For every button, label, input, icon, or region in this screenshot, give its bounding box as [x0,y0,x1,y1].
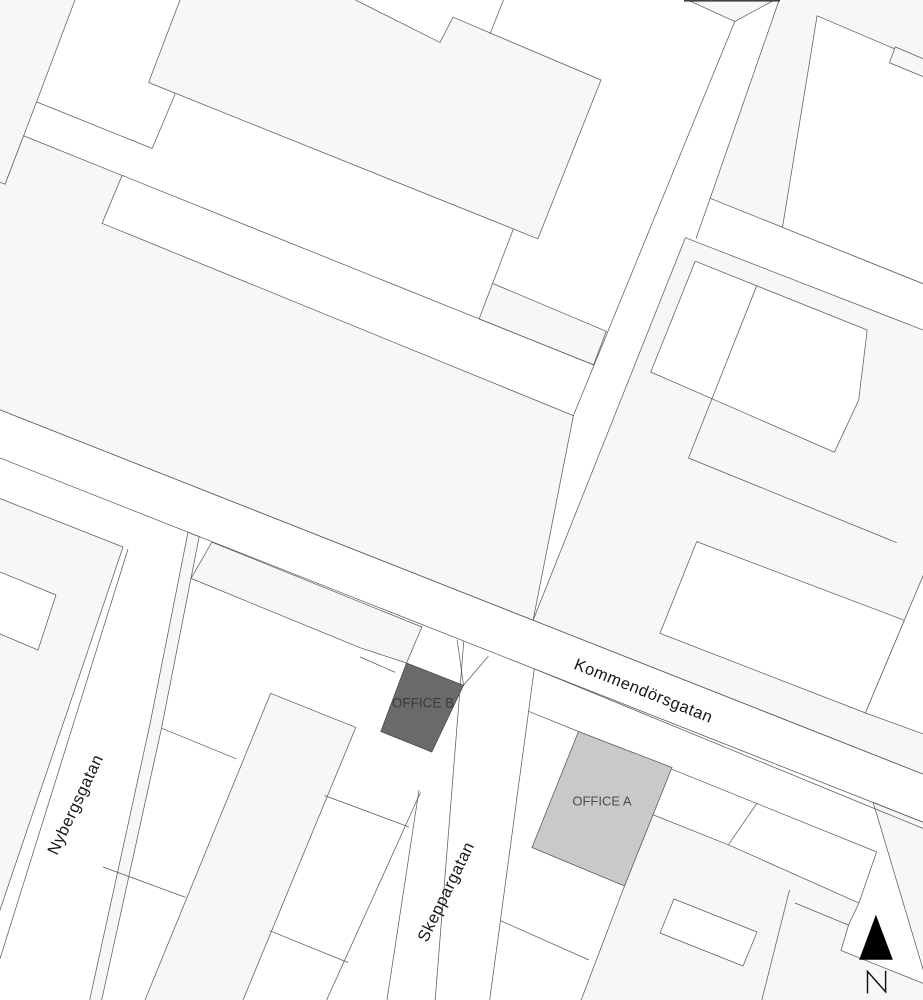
svg-text:Nybergsgatan: Nybergsgatan [44,752,107,858]
svg-text:OFFICE B: OFFICE B [392,696,454,711]
svg-text:OFFICE A: OFFICE A [572,794,632,809]
